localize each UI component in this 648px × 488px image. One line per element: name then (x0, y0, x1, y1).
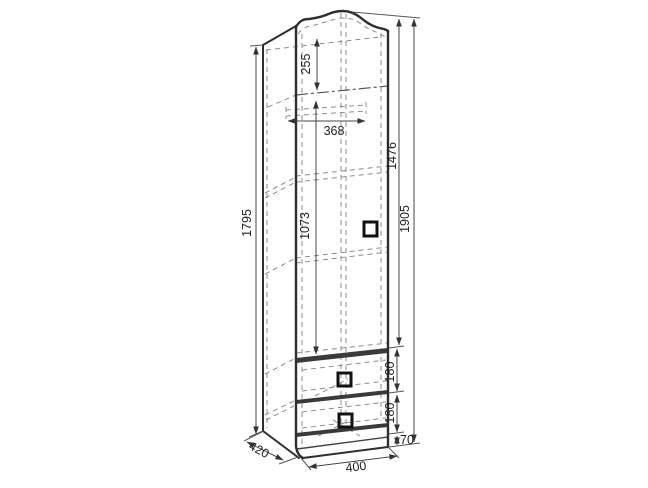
drawer-section-top (296, 348, 388, 363)
label-drawer-bottom: 180 (383, 403, 397, 424)
label-plinth: 70 (400, 433, 414, 447)
drawer-top-handle (338, 373, 351, 386)
technical-drawing: 1795 255 1073 368 1476 1905 180 180 70 4… (0, 0, 648, 488)
label-depth: 420 (247, 439, 272, 461)
extension-lines (244, 12, 420, 470)
label-door-height: 1476 (385, 142, 399, 170)
label-width: 400 (345, 459, 367, 475)
top-shelf-edge (296, 86, 388, 95)
wardrobe-drawing-canvas: 1795 255 1073 368 1476 1905 180 180 70 4… (0, 0, 648, 488)
plinth-top-edge (297, 437, 388, 449)
hidden-edges (265, 13, 388, 446)
label-rod-width: 368 (324, 124, 345, 138)
drawer-divider (296, 390, 388, 404)
door-handle (364, 222, 377, 236)
label-top-section: 255 (299, 54, 313, 75)
label-total-height: 1905 (398, 205, 412, 233)
side-top-edge (263, 26, 296, 45)
plinth-bottom-edge (303, 447, 388, 458)
label-hanging-section: 1073 (298, 212, 312, 240)
label-drawer-top: 180 (383, 362, 397, 383)
label-side-height: 1795 (240, 209, 254, 237)
